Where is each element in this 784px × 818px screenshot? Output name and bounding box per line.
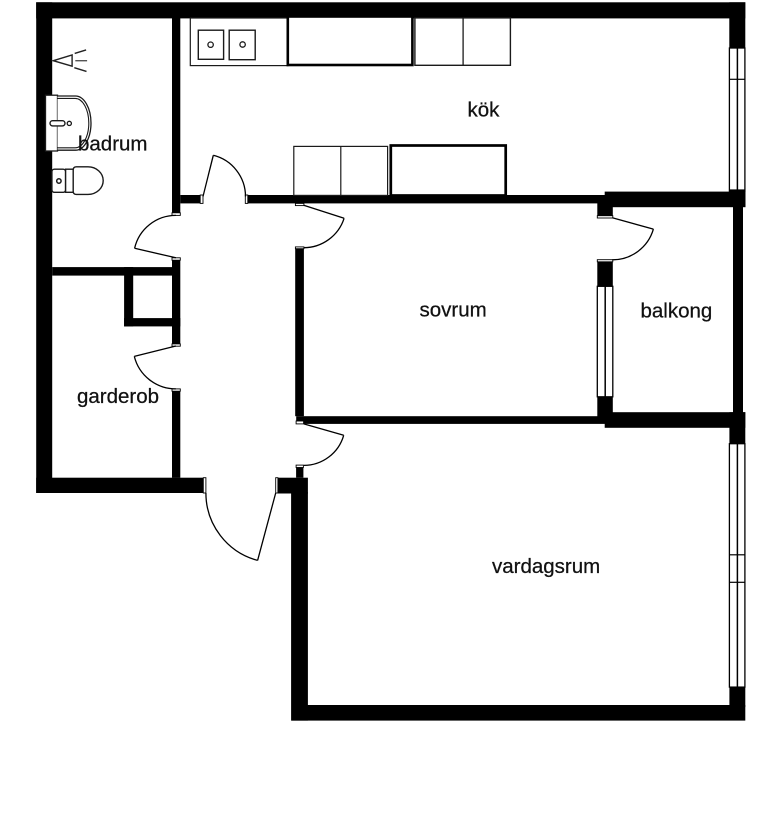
svg-text:badrum: badrum bbox=[78, 132, 148, 155]
svg-text:sovrum: sovrum bbox=[420, 299, 487, 322]
svg-text:balkong: balkong bbox=[641, 300, 713, 323]
svg-text:kök: kök bbox=[468, 99, 501, 122]
svg-text:garderob: garderob bbox=[77, 385, 159, 408]
svg-text:vardagsrum: vardagsrum bbox=[492, 555, 600, 578]
